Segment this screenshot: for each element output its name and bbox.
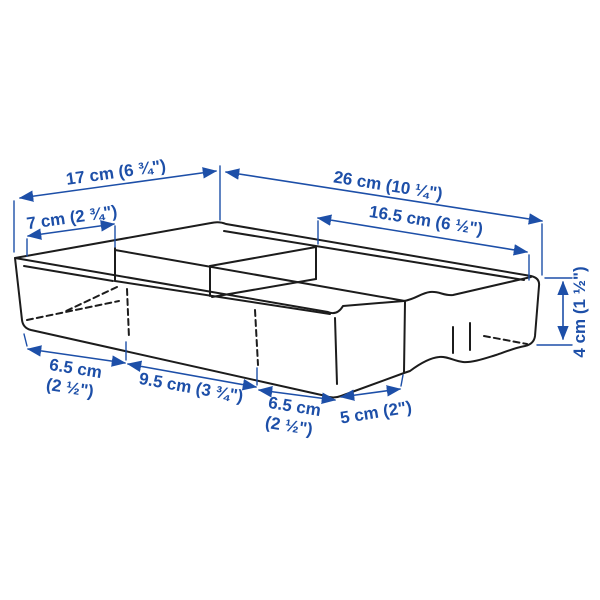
- dim-label-6-5cm-a: 6.5 cm (2 ½"): [45, 355, 104, 403]
- divider-cross-top-edge: [210, 247, 316, 266]
- front-corner-edge: [335, 318, 337, 384]
- dimension-diagram: 17 cm (6 ¾") 26 cm (10 ¼") 7 cm (2 ¾") 1…: [0, 0, 600, 600]
- right-section-rim: [404, 277, 531, 301]
- dim-label-4cm: 4 cm (1 ½"): [570, 266, 590, 357]
- hidden-edges: [27, 287, 527, 365]
- step-edge: [404, 302, 405, 372]
- divider-long-bottom-edge: [115, 281, 330, 314]
- dim-label-6-5cm-b: 6.5 cm (2 ½"): [264, 393, 323, 441]
- divider-cross-bottom-edge: [212, 279, 316, 297]
- diagram-canvas: [0, 0, 600, 600]
- extension-lines: [14, 166, 572, 386]
